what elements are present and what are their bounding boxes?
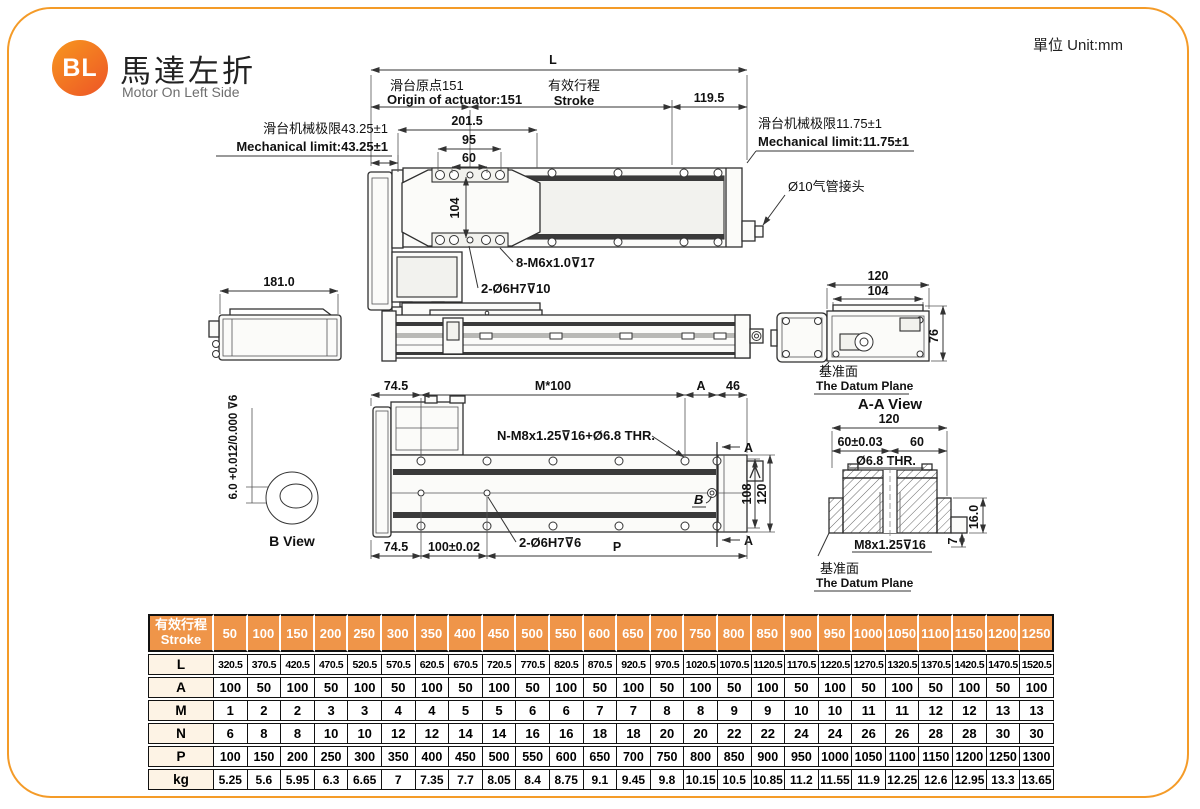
spec-row-label: A	[148, 677, 214, 698]
top-plan-view: L 滑台原点151 Origin of actuator:151 有效行程 St…	[216, 53, 914, 310]
spec-cell: 250	[315, 746, 349, 767]
stroke-col-header: 900	[785, 614, 819, 652]
spec-cell: 1150	[919, 746, 953, 767]
dim-201-5: 201.5	[451, 114, 482, 128]
spec-cell: 900	[752, 746, 786, 767]
spec-cell: 1050	[852, 746, 886, 767]
spec-cell: 1070.5	[718, 654, 752, 675]
spec-cell: 50	[785, 677, 819, 698]
spec-cell: 920.5	[617, 654, 651, 675]
spec-cell: 8.75	[550, 769, 584, 790]
dim-L: L	[549, 53, 557, 67]
dim-A: A	[696, 379, 705, 393]
aa-datum-zh: 基准面	[820, 561, 859, 576]
dim-181: 181.0	[263, 275, 294, 289]
spec-cell: 12	[416, 723, 450, 744]
spec-cell: 18	[617, 723, 651, 744]
spec-cell: 770.5	[516, 654, 550, 675]
spec-cell: 100	[819, 677, 853, 698]
spec-cell: 1370.5	[919, 654, 953, 675]
section-arrow-A-bottom: A	[744, 534, 753, 548]
dim-aa-120: 120	[879, 412, 900, 426]
spec-cell: 24	[819, 723, 853, 744]
stroke-col-header: 1000	[852, 614, 886, 652]
spec-cell: 10	[348, 723, 382, 744]
spec-cell: 18	[584, 723, 618, 744]
spec-cell: 100	[483, 677, 517, 698]
spec-cell: 200	[281, 746, 315, 767]
spec-cell: 22	[718, 723, 752, 744]
spec-cell: 11	[886, 700, 920, 721]
spec-cell: 12	[919, 700, 953, 721]
stroke-col-header: 700	[651, 614, 685, 652]
spec-cell: 600	[550, 746, 584, 767]
spec-row-label: M	[148, 700, 214, 721]
spec-cell: 9.1	[584, 769, 618, 790]
origin-label-zh: 滑台原点151	[390, 78, 464, 93]
air-fitting	[742, 221, 755, 241]
spec-cell: 470.5	[315, 654, 349, 675]
label-aa-68: Ø6.8 THR.	[856, 454, 916, 468]
dim-100-tol: 100±0.02	[428, 540, 480, 554]
motor-side-view: 181.0	[209, 275, 341, 360]
spec-cell: 1120.5	[752, 654, 786, 675]
spec-cell: 16	[550, 723, 584, 744]
spec-cell: 720.5	[483, 654, 517, 675]
spec-cell: 100	[281, 677, 315, 698]
dim-aa-60tol: 60±0.03	[837, 435, 882, 449]
label-8m6: 8-M6x1.0⊽17	[516, 255, 595, 270]
stroke-spec-table: 有效行程Stroke501001502002503003504004505005…	[148, 612, 1054, 792]
spec-cell: 100	[214, 746, 248, 767]
spec-cell: 50	[987, 677, 1021, 698]
spec-cell: 12.95	[953, 769, 987, 790]
spec-cell: 50	[852, 677, 886, 698]
spec-cell: 11.55	[819, 769, 853, 790]
dim-46: 46	[726, 379, 740, 393]
stroke-header-cell: 有效行程Stroke	[148, 614, 214, 652]
spec-cell: 7	[617, 700, 651, 721]
spec-cell: 16	[516, 723, 550, 744]
dim-76: 76	[927, 329, 941, 343]
spec-cell: 5.95	[281, 769, 315, 790]
spec-cell: 100	[617, 677, 651, 698]
spec-cell: 20	[684, 723, 718, 744]
spec-cell: 700	[617, 746, 651, 767]
mech-limit-right-zh: 滑台机械极限11.75±1	[758, 116, 882, 131]
spec-cell: 400	[416, 746, 450, 767]
dim-74-5-top: 74.5	[384, 379, 408, 393]
spec-cell: 1170.5	[785, 654, 819, 675]
stroke-header-en: Stroke	[150, 633, 212, 648]
spec-cell: 6.65	[348, 769, 382, 790]
spec-cell: 100	[752, 677, 786, 698]
mech-limit-right-en: Mechanical limit:11.75±1	[758, 134, 909, 149]
spec-cell: 1270.5	[852, 654, 886, 675]
spec-cell: 10	[315, 723, 349, 744]
stroke-col-header: 1050	[886, 614, 920, 652]
spec-cell: 24	[785, 723, 819, 744]
spec-cell: 300	[348, 746, 382, 767]
spec-cell: 10	[785, 700, 819, 721]
dim-60: 60	[462, 151, 476, 165]
spec-cell: 10.85	[752, 769, 786, 790]
spec-cell: 50	[651, 677, 685, 698]
spec-cell: 4	[416, 700, 450, 721]
label-aa-m8: M8x1.25⊽16	[854, 538, 926, 552]
spec-cell: 6	[214, 723, 248, 744]
stroke-col-header: 750	[684, 614, 718, 652]
stroke-col-header: 650	[617, 614, 651, 652]
stroke-col-header: 250	[348, 614, 382, 652]
spec-row-label: P	[148, 746, 214, 767]
spec-cell: 13	[987, 700, 1021, 721]
stroke-col-header: 100	[248, 614, 282, 652]
spec-cell: 5	[483, 700, 517, 721]
aa-section-view: A-A View 120 60±0.03 60 Ø6.8 THR. M8x1.2…	[814, 396, 987, 591]
spec-cell: 12.6	[919, 769, 953, 790]
stroke-col-header: 150	[281, 614, 315, 652]
mech-limit-left-en: Mechanical limit:43.25±1	[236, 139, 388, 154]
origin-label-en: Origin of actuator:151	[387, 92, 522, 107]
stroke-col-header: 200	[315, 614, 349, 652]
dim-104: 104	[448, 198, 462, 219]
spec-cell: 11.2	[785, 769, 819, 790]
stroke-col-header: 550	[550, 614, 584, 652]
spec-cell: 14	[483, 723, 517, 744]
dim-108: 108	[740, 484, 754, 505]
dim-P: P	[613, 540, 621, 554]
dim-120-side: 120	[755, 484, 769, 505]
stroke-col-header: 1100	[919, 614, 953, 652]
dim-end-104: 104	[868, 284, 889, 298]
spec-cell: 8	[651, 700, 685, 721]
spec-cell: 10.5	[718, 769, 752, 790]
spec-cell: 800	[684, 746, 718, 767]
spec-cell: 100	[1020, 677, 1054, 698]
spec-cell: 670.5	[449, 654, 483, 675]
spec-cell: 2	[248, 700, 282, 721]
spec-cell: 420.5	[281, 654, 315, 675]
dim-aa-7: 7	[946, 537, 960, 544]
spec-cell: 370.5	[248, 654, 282, 675]
stroke-col-header: 300	[382, 614, 416, 652]
spec-cell: 850	[718, 746, 752, 767]
stroke-col-header: 400	[449, 614, 483, 652]
spec-cell: 50	[919, 677, 953, 698]
spec-cell: 50	[516, 677, 550, 698]
dim-m100: M*100	[535, 379, 571, 393]
spec-cell: 6.3	[315, 769, 349, 790]
dim-aa-16: 16.0	[967, 505, 981, 529]
aa-datum-en: The Datum Plane	[816, 576, 914, 590]
spec-cell: 520.5	[348, 654, 382, 675]
spec-cell: 5	[449, 700, 483, 721]
dim-95: 95	[462, 133, 476, 147]
end-view-motor	[771, 313, 827, 362]
spec-cell: 500	[483, 746, 517, 767]
spec-cell: 950	[785, 746, 819, 767]
spec-cell: 7	[382, 769, 416, 790]
spec-cell: 14	[449, 723, 483, 744]
spec-cell: 100	[550, 677, 584, 698]
stroke-col-header: 800	[718, 614, 752, 652]
spec-cell: 50	[718, 677, 752, 698]
spec-cell: 4	[382, 700, 416, 721]
spec-cell: 7	[584, 700, 618, 721]
spec-cell: 8	[248, 723, 282, 744]
b-view-marker: B	[694, 492, 703, 507]
spec-cell: 1420.5	[953, 654, 987, 675]
spec-cell: 26	[886, 723, 920, 744]
stroke-col-header: 450	[483, 614, 517, 652]
spec-cell: 1200	[953, 746, 987, 767]
b-view: 6.0 +0.012/0.000 ⊽6 B View	[227, 395, 318, 549]
side-elevation-view	[382, 303, 763, 361]
spec-cell: 150	[248, 746, 282, 767]
spec-cell: 1320.5	[886, 654, 920, 675]
spec-cell: 750	[651, 746, 685, 767]
bottom-mounting-view: 74.5 M*100 A 46 N-M8x1.25⊽16+Ø6.8 THR. A…	[371, 379, 775, 559]
spec-cell: 1100	[886, 746, 920, 767]
dim-119-5: 119.5	[694, 91, 725, 105]
spec-cell: 10.15	[684, 769, 718, 790]
spec-cell: 2	[281, 700, 315, 721]
spec-cell: 22	[752, 723, 786, 744]
aa-view-title: A-A View	[858, 396, 923, 413]
label-2o6h7-6: 2-Ø6H7⊽6	[519, 535, 581, 550]
stroke-col-header: 1250	[1020, 614, 1054, 652]
stroke-col-header: 1150	[953, 614, 987, 652]
spec-cell: 1	[214, 700, 248, 721]
spec-cell: 30	[1020, 723, 1054, 744]
spec-cell: 1220.5	[819, 654, 853, 675]
dim-74-5-bottom: 74.5	[384, 540, 408, 554]
stroke-col-header: 350	[416, 614, 450, 652]
stroke-header-zh: 有效行程	[150, 618, 212, 633]
spec-cell: 100	[953, 677, 987, 698]
stroke-col-header: 50	[214, 614, 248, 652]
mech-limit-left-zh: 滑台机械极限43.25±1	[263, 121, 388, 136]
spec-cell: 9.8	[651, 769, 685, 790]
spec-cell: 13	[1020, 700, 1054, 721]
spec-cell: 1000	[819, 746, 853, 767]
spec-cell: 1020.5	[684, 654, 718, 675]
spec-cell: 10	[819, 700, 853, 721]
label-nm8: N-M8x1.25⊽16+Ø6.8 THR.	[497, 428, 655, 443]
spec-cell: 12	[382, 723, 416, 744]
stroke-col-header: 600	[584, 614, 618, 652]
spec-cell: 26	[852, 723, 886, 744]
spec-cell: 100	[684, 677, 718, 698]
spec-cell: 1520.5	[1020, 654, 1054, 675]
spec-cell: 350	[382, 746, 416, 767]
spec-cell: 570.5	[382, 654, 416, 675]
spec-cell: 7.7	[449, 769, 483, 790]
spec-cell: 50	[382, 677, 416, 698]
spec-cell: 620.5	[416, 654, 450, 675]
stroke-label-en: Stroke	[554, 93, 594, 108]
spec-cell: 870.5	[584, 654, 618, 675]
spec-cell: 8.05	[483, 769, 517, 790]
spec-cell: 320.5	[214, 654, 248, 675]
spec-cell: 1250	[987, 746, 1021, 767]
spec-cell: 820.5	[550, 654, 584, 675]
section-arrow-A-top: A	[744, 441, 753, 455]
spec-cell: 8	[281, 723, 315, 744]
b-view-title: B View	[269, 533, 315, 549]
spec-cell: 7.35	[416, 769, 450, 790]
datum-label-zh: 基准面	[819, 364, 858, 379]
spec-cell: 100	[348, 677, 382, 698]
spec-cell: 8.4	[516, 769, 550, 790]
spec-cell: 11	[852, 700, 886, 721]
spec-cell: 28	[919, 723, 953, 744]
spec-cell: 650	[584, 746, 618, 767]
spec-cell: 6	[516, 700, 550, 721]
spec-row-label: L	[148, 654, 214, 675]
spec-cell: 100	[886, 677, 920, 698]
spec-cell: 9	[752, 700, 786, 721]
spec-cell: 50	[248, 677, 282, 698]
spec-cell: 30	[987, 723, 1021, 744]
spec-cell: 550	[516, 746, 550, 767]
spec-cell: 28	[953, 723, 987, 744]
spec-cell: 13.3	[987, 769, 1021, 790]
spec-cell: 9.45	[617, 769, 651, 790]
dim-aa-60: 60	[910, 435, 924, 449]
spec-cell: 20	[651, 723, 685, 744]
spec-cell: 5.25	[214, 769, 248, 790]
spec-cell: 50	[449, 677, 483, 698]
spec-cell: 3	[348, 700, 382, 721]
spec-cell: 12.25	[886, 769, 920, 790]
air-fitting-label: Ø10气管接头	[788, 179, 865, 194]
b-view-dim: 6.0 +0.012/0.000 ⊽6	[227, 395, 240, 500]
spec-cell: 5.6	[248, 769, 282, 790]
datum-label-en: The Datum Plane	[816, 379, 914, 393]
end-view-datum: 120 104 76 基准面 The Datum Plane	[814, 269, 947, 394]
spec-cell: 970.5	[651, 654, 685, 675]
spec-cell: 450	[449, 746, 483, 767]
stroke-col-header: 850	[752, 614, 786, 652]
dim-end-120: 120	[868, 269, 889, 283]
spec-cell: 100	[214, 677, 248, 698]
spec-cell: 8	[684, 700, 718, 721]
spec-cell: 11.9	[852, 769, 886, 790]
label-2o6h7-10: 2-Ø6H7⊽10	[481, 281, 551, 296]
stroke-col-header: 500	[516, 614, 550, 652]
stroke-label-zh: 有效行程	[548, 78, 600, 93]
spec-row-label: N	[148, 723, 214, 744]
spec-cell: 100	[416, 677, 450, 698]
spec-cell: 3	[315, 700, 349, 721]
stroke-col-header: 950	[819, 614, 853, 652]
spec-cell: 12	[953, 700, 987, 721]
spec-cell: 50	[315, 677, 349, 698]
spec-cell: 9	[718, 700, 752, 721]
stroke-col-header: 1200	[987, 614, 1021, 652]
spec-cell: 13.65	[1020, 769, 1054, 790]
spec-row-label: kg	[148, 769, 214, 790]
spec-cell: 1470.5	[987, 654, 1021, 675]
spec-cell: 1300	[1020, 746, 1054, 767]
spec-cell: 6	[550, 700, 584, 721]
spec-cell: 50	[584, 677, 618, 698]
